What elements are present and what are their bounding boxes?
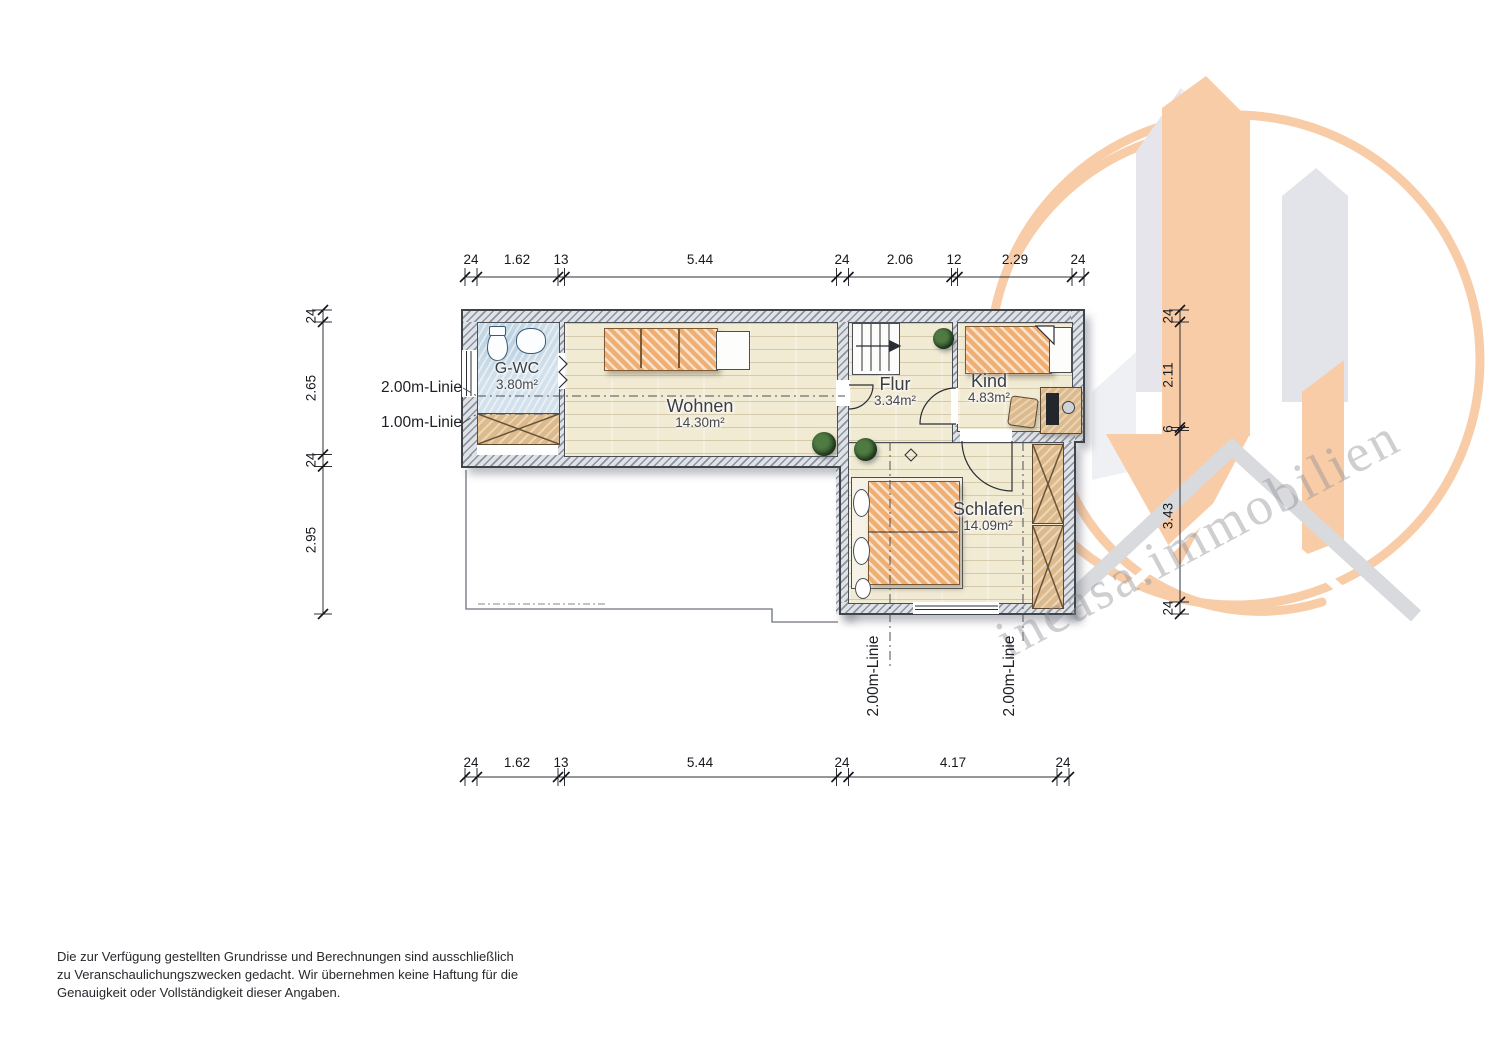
label-2m-linie-bottom-left: 2.00m-Linie bbox=[865, 636, 883, 717]
dim-bottom-1: 1.62 bbox=[504, 755, 530, 770]
staircase bbox=[852, 323, 900, 375]
plant-schlafen bbox=[854, 438, 877, 461]
dim-top-0: 24 bbox=[463, 252, 478, 267]
disclaimer-line: Die zur Verfügung gestellten Grundrisse … bbox=[57, 948, 518, 966]
schlafen-pillow bbox=[853, 537, 870, 565]
sofa bbox=[604, 328, 718, 371]
sofa-side-table bbox=[716, 331, 750, 370]
disclaimer-text: Die zur Verfügung gestellten Grundrisse … bbox=[57, 948, 518, 1003]
window-gwc bbox=[462, 350, 477, 397]
dim-bottom-6: 24 bbox=[1055, 755, 1070, 770]
dim-left-0: 24 bbox=[304, 308, 319, 323]
dim-bottom-5: 4.17 bbox=[940, 755, 966, 770]
label-1m-linie-left: 1.00m-Linie bbox=[348, 414, 462, 432]
room-label-wohnen: Wohnen 14.30m² bbox=[630, 397, 770, 430]
door-gap-gwc bbox=[558, 353, 565, 389]
kind-bed-pillow bbox=[1049, 327, 1072, 373]
gwc-knee-storage bbox=[477, 413, 560, 445]
room-label-gwc: G-WC 3.80m² bbox=[476, 361, 558, 392]
dim-bottom-3: 5.44 bbox=[687, 755, 713, 770]
dim-right-0: 24 bbox=[1161, 308, 1176, 323]
door-gap-flur-wohnen bbox=[836, 380, 850, 406]
dim-left-1: 2.65 bbox=[304, 375, 319, 401]
sofa-cushion-divider bbox=[678, 329, 680, 368]
door-gap-schlafen bbox=[960, 429, 1012, 442]
kind-bed bbox=[965, 326, 1052, 374]
dim-right-4: 24 bbox=[1161, 600, 1176, 615]
label-2m-linie-left: 2.00m-Linie bbox=[348, 379, 462, 397]
dim-top-5: 2.06 bbox=[887, 252, 913, 267]
dim-left-3: 2.95 bbox=[304, 527, 319, 553]
disclaimer-line: zu Veranschaulichungszwecken gedacht. Wi… bbox=[57, 966, 518, 984]
label-2m-linie-bottom-right: 2.00m-Linie bbox=[1001, 636, 1019, 717]
dim-bottom-0: 24 bbox=[463, 755, 478, 770]
plant-flur bbox=[933, 328, 954, 349]
dim-top-7: 2.29 bbox=[1002, 252, 1028, 267]
window-schlafen bbox=[913, 602, 999, 614]
dim-bottom-4: 24 bbox=[834, 755, 849, 770]
kind-desk-monitor bbox=[1046, 393, 1059, 425]
toilet-tank bbox=[489, 326, 506, 336]
schlafen-pillow bbox=[853, 489, 870, 517]
room-label-kind: Kind 4.83m² bbox=[943, 372, 1035, 405]
room-label-schlafen: Schlafen 14.09m² bbox=[928, 500, 1048, 533]
dim-right-3: 3.43 bbox=[1161, 503, 1176, 529]
schlafen-bedside bbox=[855, 578, 871, 599]
dim-top-3: 5.44 bbox=[687, 252, 713, 267]
disclaimer-line: Genauigkeit oder Vollständigkeit dieser … bbox=[57, 984, 518, 1002]
dim-top-8: 24 bbox=[1070, 252, 1085, 267]
dim-bottom-2: 13 bbox=[553, 755, 568, 770]
sofa-cushion-divider bbox=[640, 329, 642, 368]
floorplan-canvas: 24 1.62 13 5.44 24 2.06 12 2.29 24 24 1.… bbox=[0, 0, 1497, 1058]
dim-top-6: 12 bbox=[946, 252, 961, 267]
dim-top-1: 1.62 bbox=[504, 252, 530, 267]
plant-wohnen bbox=[812, 432, 836, 456]
dim-top-4: 24 bbox=[834, 252, 849, 267]
dim-right-1: 2.11 bbox=[1161, 362, 1176, 387]
dim-left-2: 24 bbox=[304, 452, 319, 467]
dim-right-2: 6 bbox=[1161, 425, 1176, 433]
sink bbox=[516, 328, 546, 354]
room-label-flur: Flur 3.34m² bbox=[849, 375, 941, 408]
dim-top-2: 13 bbox=[553, 252, 568, 267]
kind-desk-lamp bbox=[1062, 401, 1075, 414]
